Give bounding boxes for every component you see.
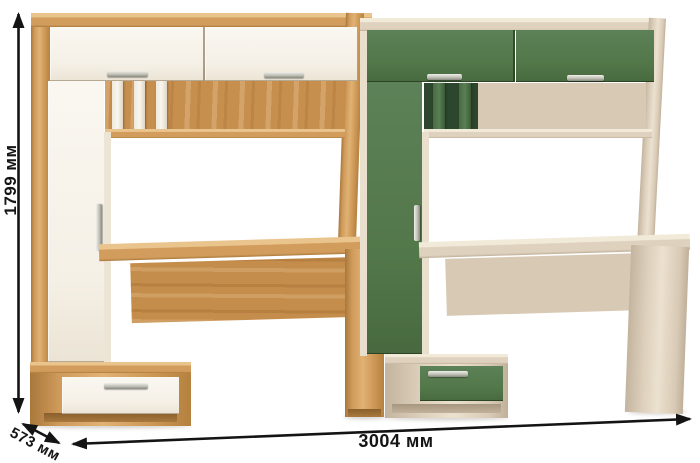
left-shelf-divider (156, 81, 167, 131)
right-desk-leg (625, 245, 689, 414)
drawer-handle (428, 371, 468, 377)
height-dimension-label: 1799 мм (1, 110, 21, 250)
right-pedestal-base (392, 404, 501, 413)
left-desk-back-panel (130, 257, 361, 323)
right-shelf-divider (459, 83, 471, 131)
door-handle (264, 72, 304, 78)
left-overhead-door-1 (50, 27, 205, 81)
door-handle (107, 71, 148, 77)
right-pedestal-top (385, 354, 508, 364)
right-drawer-front (420, 366, 503, 401)
left-pedestal-top (30, 362, 191, 373)
right-overhead-door-1 (367, 30, 515, 82)
left-desk-foot (348, 409, 381, 417)
door-handle (414, 205, 420, 241)
left-unit-top-board (31, 13, 372, 27)
door-handle (427, 74, 462, 80)
left-drawer-front (62, 377, 179, 414)
drawer-handle (104, 383, 148, 389)
right-shelf-bottom-board (424, 129, 652, 138)
left-shelf-divider (112, 81, 123, 131)
right-wardrobe-door (367, 82, 422, 354)
left-shelf-bottom-board (105, 129, 345, 138)
left-shelf-divider (134, 81, 145, 131)
left-overhead-door-2 (205, 27, 357, 81)
right-overhead-door-2 (516, 30, 654, 82)
right-unit-left-edge (360, 18, 367, 356)
left-wardrobe-door (48, 81, 104, 362)
right-desk-back-panel (445, 253, 643, 316)
left-pedestal-base (44, 413, 177, 422)
width-dimension-label: 3004 мм (296, 431, 496, 452)
furniture-product-image: 1799 мм 3004 мм 573 мм (0, 0, 700, 463)
door-handle (567, 75, 604, 81)
right-shelf-divider (433, 83, 445, 131)
